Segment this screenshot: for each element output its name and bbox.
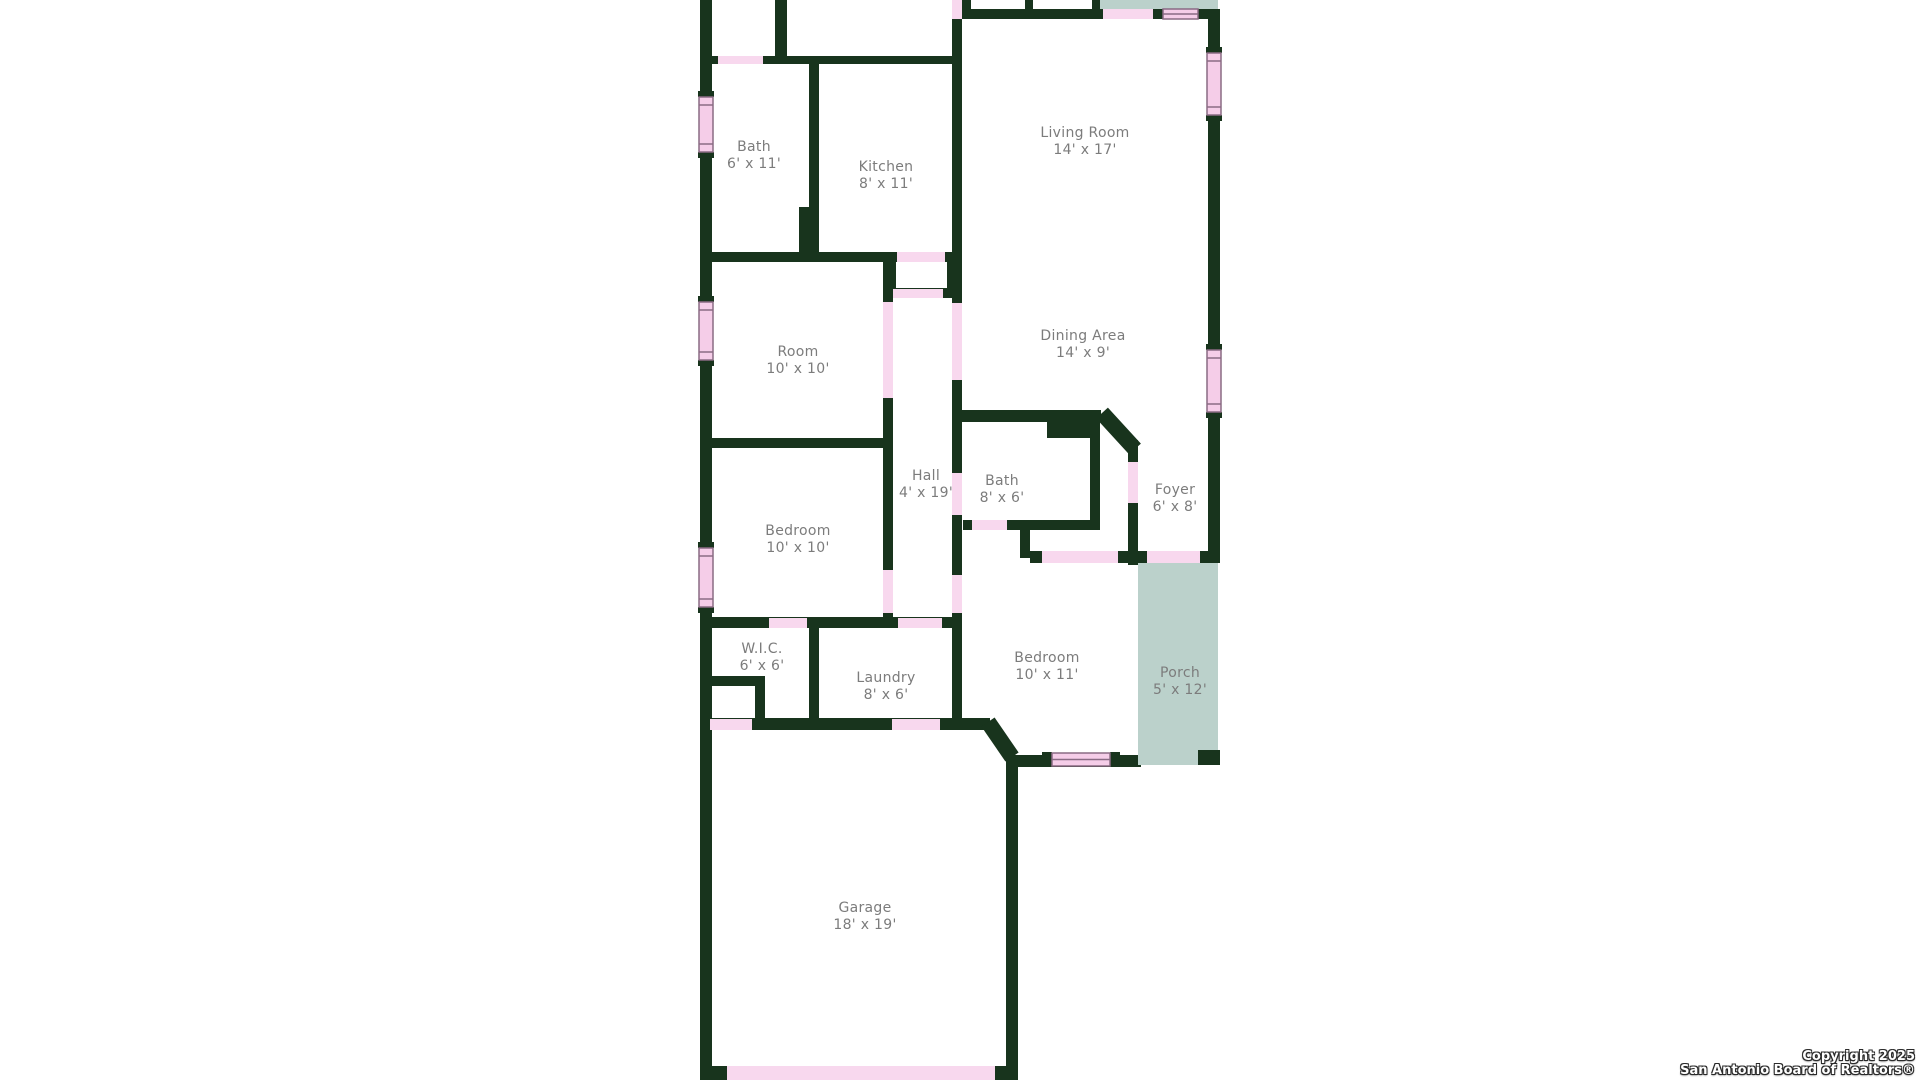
window-icon: [698, 91, 714, 158]
window-icon: [698, 296, 714, 366]
copyright-line-2: San Antonio Board of Realtors®: [1680, 1063, 1915, 1078]
window-icon: [1042, 752, 1120, 767]
room-label-kitchen: Kitchen8' x 11': [859, 159, 914, 193]
room-label-garage: Garage18' x 19': [833, 900, 896, 934]
porch-areas-layer: [1100, 0, 1220, 765]
room-label-bath-2: Bath8' x 6': [980, 473, 1025, 507]
room-label-wic: W.I.C.6' x 6': [740, 641, 785, 675]
room-label-room: Room10' x 10': [766, 344, 829, 378]
floorplan-page: Bath6' x 11' Kitchen8' x 11' Living Room…: [0, 0, 1920, 1080]
room-label-porch: Porch5' x 12': [1153, 665, 1207, 699]
room-label-living-room: Living Room14' x 17': [1040, 125, 1129, 159]
room-label-dining-area: Dining Area14' x 9': [1040, 328, 1125, 362]
window-icon: [1206, 47, 1222, 121]
room-label-foyer: Foyer6' x 8': [1153, 482, 1198, 516]
room-label-hall: Hall4' x 19': [899, 468, 953, 502]
floorplan-drawing: [0, 0, 1920, 1080]
copyright-line-1: Copyright 2025: [1802, 1049, 1915, 1064]
room-label-bath-1: Bath6' x 11': [727, 139, 781, 173]
room-label-bedroom-2: Bedroom10' x 11': [1014, 650, 1079, 684]
copyright-notice: Copyright 2025 San Antonio Board of Real…: [1680, 1050, 1915, 1078]
window-icon: [698, 542, 714, 613]
room-label-bedroom-1: Bedroom10' x 10': [765, 523, 830, 557]
window-icon: [1206, 344, 1222, 418]
room-label-laundry: Laundry8' x 6': [856, 670, 915, 704]
window-icon: [1153, 9, 1208, 19]
